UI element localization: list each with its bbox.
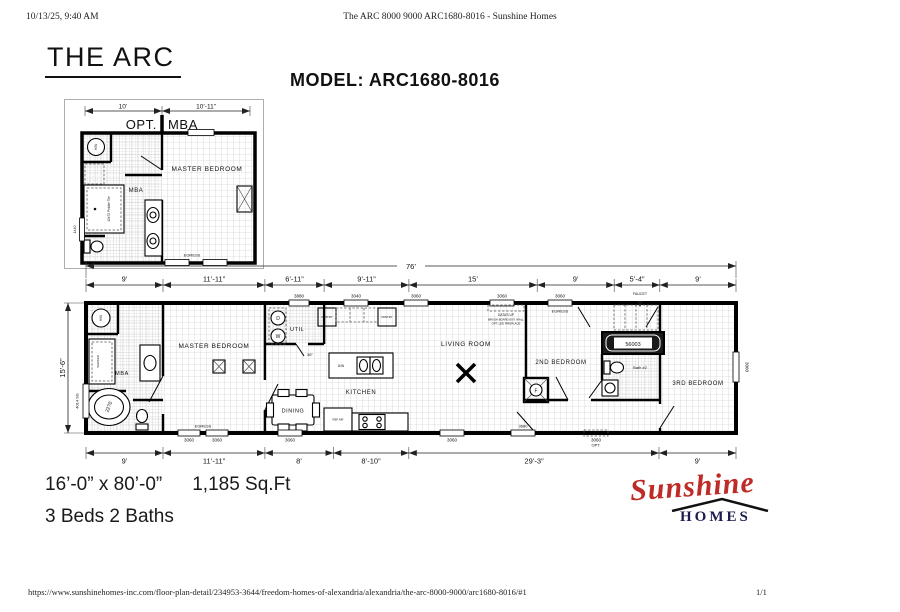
egress-label: EGRESS (195, 424, 212, 429)
window (206, 430, 228, 436)
window-tag: 3060 (212, 438, 223, 443)
room-label-util: UTIL (290, 327, 304, 333)
main-plan-drawing: 76’ 9’ 11’-11” 6’-11” 9’-11” 15’ 9’ 5’-4… (56, 256, 756, 470)
window (83, 384, 89, 418)
dim-label: 5’-4” (629, 275, 645, 284)
window-tag: 1440 (73, 226, 77, 234)
dim-label: 9’ (122, 457, 128, 466)
toilet (604, 361, 610, 374)
dim-label: 6’-11” (285, 275, 304, 284)
dim-label: 10’-11” (196, 104, 216, 111)
room-label-dining: DINING (282, 409, 305, 415)
room-label-bed2: 2ND BEDROOM (535, 360, 586, 366)
window (188, 130, 214, 136)
tub-size-tag: 56003 (625, 342, 640, 348)
page-number: 1/1 (756, 587, 767, 597)
window (548, 300, 572, 306)
dim-label: 9’-11” (357, 275, 376, 284)
window (80, 218, 85, 241)
overall-width-dim: 76’ (406, 262, 416, 271)
room-label-kitchen: KITCHEN (346, 390, 377, 396)
egress-label: EGRESS (552, 309, 569, 314)
window (278, 430, 302, 436)
vanity (145, 200, 162, 256)
front-door (511, 430, 535, 436)
model-heading: MODEL: ARC1680-8016 (290, 70, 500, 91)
vanity (140, 345, 160, 381)
left-dimension: 15’-6” (58, 303, 84, 433)
dim-label: 11’-11” (203, 457, 226, 466)
bottom-dimension-row: 9’ 11’-11” 8’ 8’-10” 29’-3” 9’ (86, 447, 736, 466)
opt-mba-plan-drawing: 10’ 10’-11” OPT. MBA H/W 42x72 Pebble Ti… (65, 100, 263, 268)
spec-summary: 16’-0” x 80’-0”1,185 Sq.Ft 3 Beds 2 Bath… (45, 474, 290, 528)
window-tag: 3060 (184, 438, 195, 443)
room-label-bath2: Bath #2 (633, 365, 648, 370)
opt-mba-floor-plan: 10’ 10’-11” OPT. MBA H/W 42x72 Pebble Ti… (64, 99, 264, 269)
shower (89, 339, 115, 384)
water-heater-label: H/W (94, 144, 98, 150)
window-tag: 3060 (497, 294, 508, 299)
opt-title: OPT. (126, 117, 157, 132)
faucet-label: FAUCET (633, 292, 648, 296)
page-title: THE ARC (45, 42, 181, 78)
spec-beds-baths: 3 Beds 2 Baths (45, 506, 290, 528)
pantry-label: PANTRY (381, 315, 392, 319)
vanity (602, 380, 618, 396)
dim-label: 29’-3” (524, 457, 544, 466)
window (440, 430, 464, 436)
dim-label: 9’ (695, 275, 701, 284)
util-door (289, 300, 309, 306)
washer-label: W (276, 334, 281, 340)
fridge-label: REF AIR (333, 418, 344, 422)
dim-label: 9’ (695, 457, 701, 466)
water-heater-label: H/W (99, 315, 103, 321)
furnace-label: F (534, 388, 537, 394)
dim-label: 11’-11” (203, 275, 226, 284)
toilet (136, 424, 148, 430)
window-tag: 3060 (555, 294, 566, 299)
print-url: https://www.sunshinehomes-inc.com/floor-… (28, 587, 527, 597)
door-tag: 3680 (519, 424, 529, 429)
pantry-label: PANTRY (321, 315, 332, 319)
pebble-shower (84, 185, 124, 233)
room-label-master: MASTER BEDROOM (172, 166, 243, 173)
window (404, 300, 428, 306)
dim-label: 10’ (119, 104, 128, 111)
logo-sub-brand-text: HOMES (680, 509, 751, 526)
media-note: OPT. LED FIREPLACE (492, 321, 521, 325)
window-tag: 3060 (745, 362, 750, 373)
window (178, 430, 200, 436)
dryer-label: D (276, 316, 280, 322)
dim-label: 15’-6” (58, 358, 67, 378)
pebble-tile-note: 42x72 Pebble Tile (107, 196, 111, 222)
top-dimension-row: 9’ 11’-11” 6’-11” 9’-11” 15’ 9’ 5’-4” 9’ (86, 275, 736, 293)
door-size-note: 36” (307, 352, 313, 357)
dishwasher-label: D/W (338, 364, 344, 368)
room-label-mba: MBA (129, 188, 144, 194)
sunshine-homes-logo: Sunshine HOMES (630, 470, 775, 530)
counter (352, 413, 408, 431)
window-tag: 3060 (447, 438, 458, 443)
room-label-mba: MBA (115, 371, 129, 377)
window-tag: 3060 (285, 438, 296, 443)
spec-area: 1,185 Sq.Ft (192, 474, 290, 495)
door-tag: 3880 (294, 294, 305, 299)
window-tag: 3060 (411, 294, 422, 299)
window-tag: 3040 (351, 294, 362, 299)
window-tag: 4014 SG (75, 393, 80, 409)
room-label-bed3: 3RD BEDROOM (672, 381, 723, 387)
shower-label: SHOWER (96, 355, 100, 368)
window (733, 352, 739, 382)
dim-label: 9’ (122, 275, 128, 284)
dim-label: 9’ (573, 275, 579, 284)
dim-label: 8’ (296, 457, 302, 466)
dim-label: 8’-10” (361, 457, 381, 466)
window-tag-opt: OPT. (592, 443, 601, 448)
room-label-living: LIVING ROOM (441, 341, 491, 348)
printed-floor-plan-page: 10/13/25, 9:40 AM The ARC 8000 9000 ARC1… (0, 0, 900, 612)
spec-size: 16’-0” x 80’-0” (45, 474, 162, 495)
window (344, 300, 368, 306)
room-label-master: MASTER BEDROOM (179, 343, 250, 350)
dim-label: 15’ (468, 275, 478, 284)
main-floor-plan: 76’ 9’ 11’-11” 6’-11” 9’-11” 15’ 9’ 5’-4… (56, 256, 756, 470)
toilet (84, 240, 90, 253)
print-doc-title: The ARC 8000 9000 ARC1680-8016 - Sunshin… (0, 12, 900, 22)
